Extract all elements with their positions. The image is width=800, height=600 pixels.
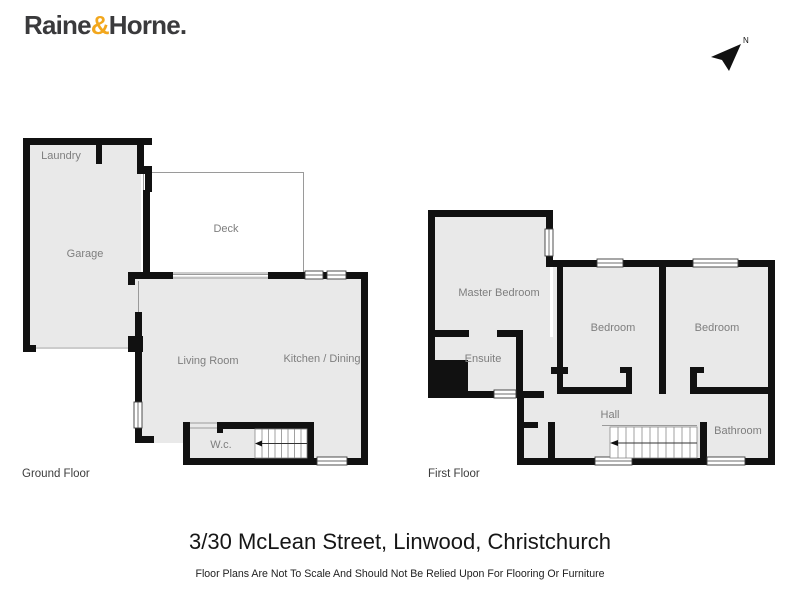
north-arrow: N	[711, 36, 749, 71]
kitchen-window-1	[305, 271, 323, 279]
north-arrow-icon	[711, 44, 741, 71]
label-garage: Garage	[67, 248, 104, 260]
disclaimer-text: Floor Plans Are Not To Scale And Should …	[0, 568, 800, 580]
first-floor-caption: First Floor	[428, 468, 480, 480]
label-wc: W.c.	[210, 439, 231, 451]
label-bathroom: Bathroom	[714, 425, 762, 437]
bathroom-window-bottom	[707, 457, 745, 465]
north-label: N	[743, 36, 749, 45]
first-floor-plan: Master Bedroom Ensuite Bedroom Bedroom H…	[428, 210, 775, 480]
garage-block-fill	[27, 142, 141, 347]
master-window-right	[545, 229, 553, 256]
label-ensuite: Ensuite	[465, 353, 502, 365]
property-address: 3/30 McLean Street, Linwood, Christchurc…	[0, 529, 800, 555]
label-master: Master Bedroom	[458, 287, 539, 299]
bedroom1-window-top	[597, 259, 623, 267]
label-hall: Hall	[601, 409, 620, 421]
first-floor-stairs	[602, 426, 697, 459]
living-window-left	[134, 402, 142, 428]
kitchen-window-bottom	[317, 457, 347, 465]
bedroom2-window-top	[693, 259, 738, 267]
floorplan-canvas: N	[0, 0, 800, 600]
label-laundry: Laundry	[41, 150, 81, 162]
label-deck: Deck	[213, 223, 239, 235]
ground-floor-caption: Ground Floor	[22, 468, 90, 480]
label-kitchen: Kitchen / Dining	[283, 353, 360, 365]
ensuite-window-bottom	[494, 390, 516, 398]
label-living: Living Room	[177, 355, 238, 367]
ground-floor-stairs	[255, 429, 307, 458]
label-bedroom2: Bedroom	[695, 322, 740, 334]
ground-floor-plan: Laundry Garage Deck Living Room Kitchen …	[22, 138, 368, 480]
label-bedroom1: Bedroom	[591, 322, 636, 334]
kitchen-window-2	[327, 271, 346, 279]
